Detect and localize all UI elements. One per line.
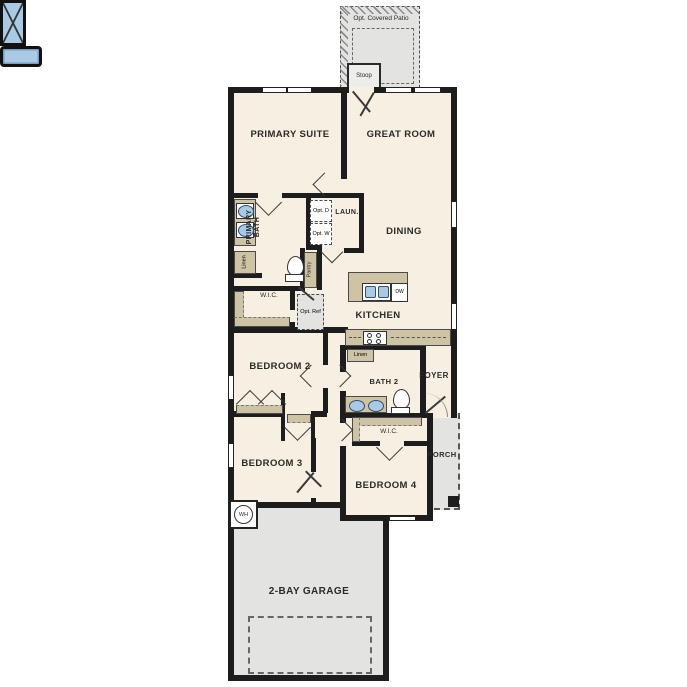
bath2-label: BATH 2 <box>360 377 408 386</box>
floor-plan-canvas: Opt. Covered Patio Stoop <box>0 0 687 687</box>
wall <box>359 193 364 253</box>
wic2-shelf <box>357 417 422 426</box>
bedroom4-label: BEDROOM 4 <box>344 480 428 491</box>
wall <box>228 193 258 198</box>
dishwasher-label: DW <box>394 290 404 296</box>
wic-shelf <box>234 317 290 327</box>
laundry-label: LAUN. <box>331 209 363 217</box>
garage-label: 2-BAY GARAGE <box>263 586 355 598</box>
linen-closet-bath2: Linen <box>347 349 374 362</box>
water-heater-box: WH <box>229 500 258 529</box>
wall <box>340 515 433 521</box>
wall <box>311 411 315 441</box>
wall <box>313 411 327 417</box>
garage-door-outline <box>248 616 372 674</box>
window <box>414 87 441 93</box>
patio-label: Opt. Covered Patio <box>344 15 418 23</box>
window <box>451 303 457 330</box>
foyer-label: FOYER <box>414 371 454 381</box>
sink-icon <box>368 400 384 412</box>
dining-label: DINING <box>368 226 440 237</box>
range-burner <box>376 339 381 344</box>
porch-column <box>448 496 459 507</box>
range-burner <box>376 333 381 338</box>
opt-washer: Opt. W <box>310 223 332 245</box>
stoop-area: Stoop <box>347 63 381 90</box>
shower-icon <box>0 0 26 46</box>
opt-ref-label: Opt. Ref <box>300 309 320 315</box>
bedroom3-label: BEDROOM 3 <box>228 458 316 469</box>
water-heater-icon: WH <box>234 505 253 524</box>
kitchen-label: KITCHEN <box>342 310 414 321</box>
wall <box>404 441 427 446</box>
linen-primary-label: Linen <box>242 256 248 269</box>
toilet-icon <box>287 256 304 276</box>
wall <box>317 250 322 290</box>
toilet-tank <box>391 407 410 414</box>
wall <box>228 327 348 333</box>
patio-hatch-top <box>341 6 419 14</box>
sink-icon <box>365 286 376 298</box>
linen-closet-primary: Linen <box>234 251 256 274</box>
wall <box>451 87 457 418</box>
toilet-tank <box>285 274 304 282</box>
wall <box>341 87 347 179</box>
pantry-label: Pantry <box>307 253 316 287</box>
dishwasher-icon: DW <box>391 283 408 302</box>
window <box>389 516 416 521</box>
wall <box>311 498 316 506</box>
opt-refrigerator: Opt. Ref <box>297 294 324 330</box>
opt-dryer-label: Opt. D <box>313 208 329 214</box>
toilet-icon <box>393 389 410 409</box>
counter-dash <box>349 337 361 338</box>
sink-icon <box>378 286 389 298</box>
wall <box>323 388 328 413</box>
bathtub-icon <box>0 46 42 67</box>
wall <box>427 413 433 521</box>
window <box>451 201 457 228</box>
window-mullion <box>286 87 288 93</box>
primary-suite-label: PRIMARY SUITE <box>248 129 332 140</box>
linen-bath2-label: Linen <box>354 352 367 358</box>
wall <box>344 248 364 253</box>
sink-icon <box>349 400 365 412</box>
counter-dash <box>391 337 446 338</box>
range-burner <box>367 333 372 338</box>
stoop-label: Stoop <box>356 73 372 80</box>
window <box>228 375 234 400</box>
opt-dryer: Opt. D <box>310 200 332 222</box>
opt-washer-label: Opt. W <box>312 231 329 237</box>
porch-label: PORCH <box>422 450 462 459</box>
wall <box>228 675 389 681</box>
range-burner <box>367 339 372 344</box>
wall <box>383 518 389 681</box>
wic-primary-label: W.I.C. <box>243 292 295 300</box>
great-room-label: GREAT ROOM <box>363 129 439 140</box>
window <box>385 87 412 93</box>
